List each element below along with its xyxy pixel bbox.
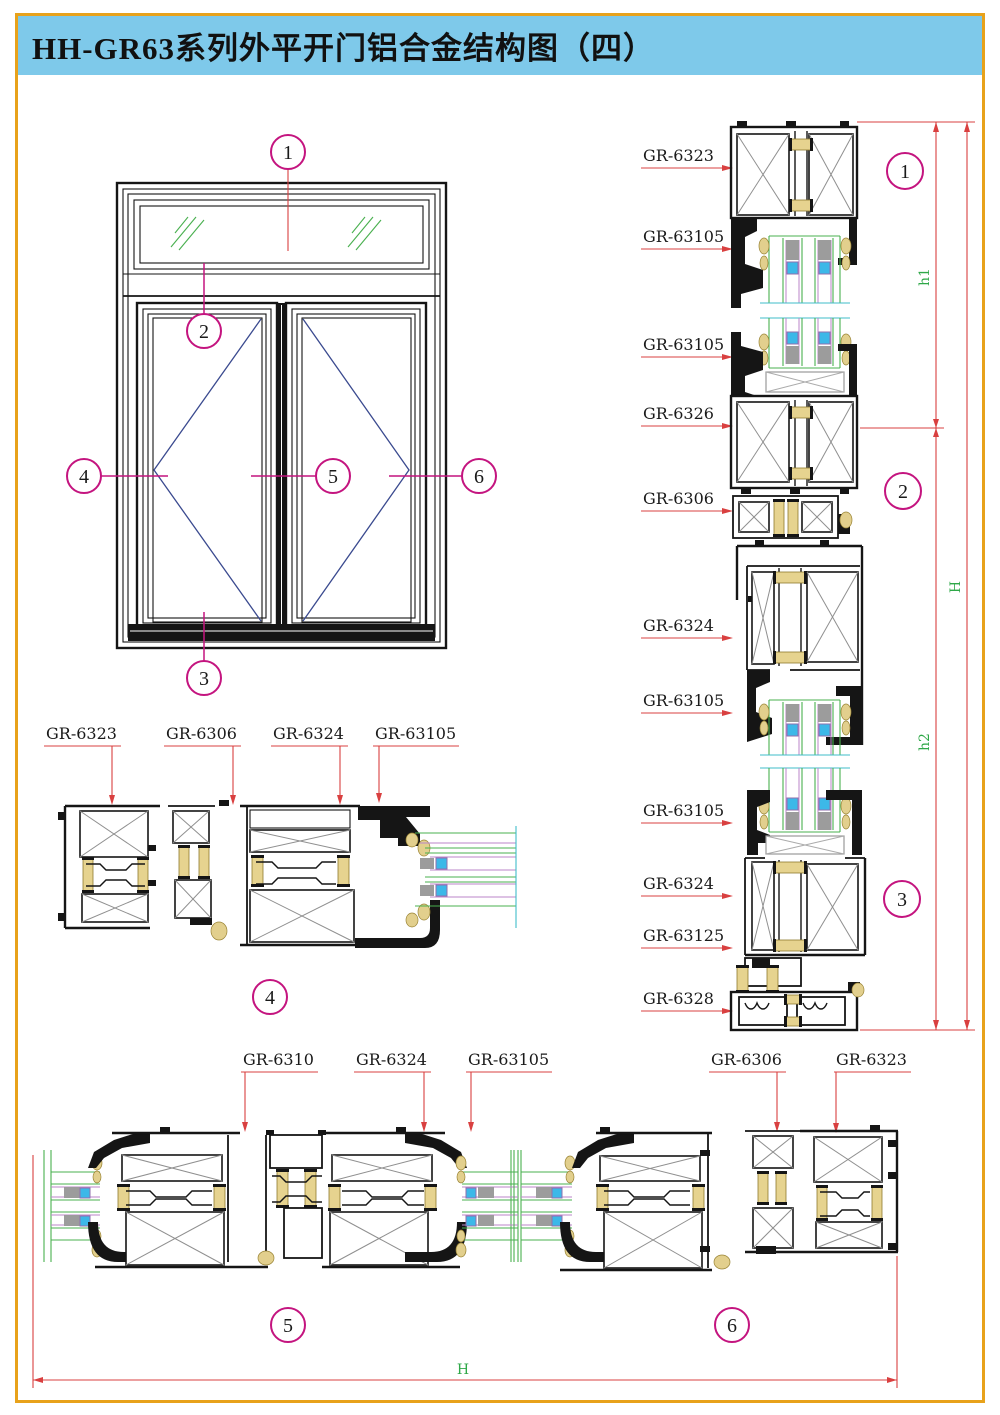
left-leaf-stile — [88, 1127, 268, 1267]
part-label: GR-6306 — [643, 489, 714, 508]
part-label: GR-6328 — [643, 989, 714, 1008]
callout-section-5: 5 — [271, 1308, 305, 1342]
part-label: GR-6323 — [836, 1050, 907, 1069]
glass-stub-right — [456, 1150, 518, 1262]
profile-threshold — [731, 982, 864, 1030]
leaf-stile-s6 — [560, 1127, 730, 1270]
callout-number: 2 — [898, 481, 908, 503]
part-label: GR-63105 — [375, 724, 456, 743]
part-label: GR-6324 — [273, 724, 344, 743]
profile-transom — [731, 396, 857, 494]
mid-rail — [123, 274, 440, 296]
part-label: GR-63105 — [643, 335, 724, 354]
profile-connector-s4 — [168, 806, 227, 940]
callout-number: 4 — [265, 987, 275, 1009]
callout-3-number: 3 — [199, 668, 209, 690]
part-label: GR-6324 — [356, 1050, 427, 1069]
profile-adapter — [736, 958, 801, 993]
callout-2: 2 — [187, 263, 221, 348]
dim-h2: h2 — [917, 733, 933, 751]
callout-number: 1 — [900, 161, 910, 183]
callout-4-number: 4 — [79, 466, 89, 488]
part-label: GR-6323 — [46, 724, 117, 743]
dim-H: H — [948, 581, 964, 593]
part-label: GR-6326 — [643, 404, 714, 423]
dim-H-bottom: H — [457, 1362, 469, 1378]
vertical-section-strip: GR-6323 GR-63105 GR-63105 GR-6326 GR-630… — [641, 121, 975, 1030]
left-door-leaf — [137, 303, 277, 629]
dim-h1: h1 — [917, 268, 933, 286]
door-elevation: 1 2 3 4 5 6 — [67, 135, 496, 695]
part-label: GR-6306 — [711, 1050, 782, 1069]
profile-frame-jamb — [58, 806, 160, 928]
part-labels-right: GR-6323 GR-63105 GR-63105 GR-6326 GR-630… — [641, 146, 733, 1014]
callout-6-number: 6 — [474, 466, 484, 488]
callout-section-4: 4 — [253, 980, 287, 1014]
swing-symbol-left — [154, 319, 261, 621]
callout-1-number: 1 — [283, 142, 293, 164]
door-glass-unit — [759, 700, 851, 832]
callout-number: 6 — [727, 1315, 737, 1337]
transom-panel — [134, 200, 429, 269]
callout-section-6: 6 — [715, 1308, 749, 1342]
section-5: GR-6310 GR-6324 GR-63105 — [33, 1050, 552, 1388]
glass-hatch-icon — [171, 217, 381, 250]
profile-connector-s6 — [745, 1131, 800, 1254]
part-label: GR-63105 — [643, 227, 724, 246]
callout-number: 5 — [283, 1315, 293, 1337]
dimension-line-bottom: H — [33, 1362, 897, 1383]
sill-band — [128, 624, 435, 641]
callout-detail-3: 3 — [884, 881, 920, 917]
profile-sash-top — [747, 566, 860, 670]
profile-connector — [733, 496, 852, 538]
callout-1: 1 — [271, 135, 305, 251]
part-label: GR-6323 — [643, 146, 714, 165]
right-door-leaf — [286, 303, 426, 629]
profile-sash-stile — [219, 800, 365, 945]
profile-head-frame — [731, 121, 857, 218]
part-label: GR-63125 — [643, 926, 724, 945]
right-leaf-stile — [322, 1127, 467, 1267]
callout-number: 3 — [897, 889, 907, 911]
callout-2-number: 2 — [199, 321, 209, 343]
callout-detail-2: 2 — [885, 473, 921, 509]
section-4: GR-6323 GR-6306 GR-6324 GR-63105 — [44, 724, 516, 1014]
section-6: GR-6306 GR-6323 — [514, 1050, 911, 1388]
part-label: GR-63105 — [643, 691, 724, 710]
transom-glass-unit — [759, 236, 851, 368]
part-label: GR-6324 — [643, 874, 714, 893]
part-label: GR-6324 — [643, 616, 714, 635]
part-label: GR-6310 — [243, 1050, 314, 1069]
part-label: GR-63105 — [468, 1050, 549, 1069]
part-label: GR-63105 — [643, 801, 724, 820]
center-mullion — [258, 1130, 326, 1265]
callout-detail-1: 1 — [887, 153, 923, 189]
part-label: GR-6306 — [166, 724, 237, 743]
drawing-canvas: 1 2 3 4 5 6 GR-632 — [0, 0, 1000, 1415]
callout-5-number: 5 — [328, 466, 338, 488]
profile-sash-bottom-rail — [745, 858, 865, 955]
